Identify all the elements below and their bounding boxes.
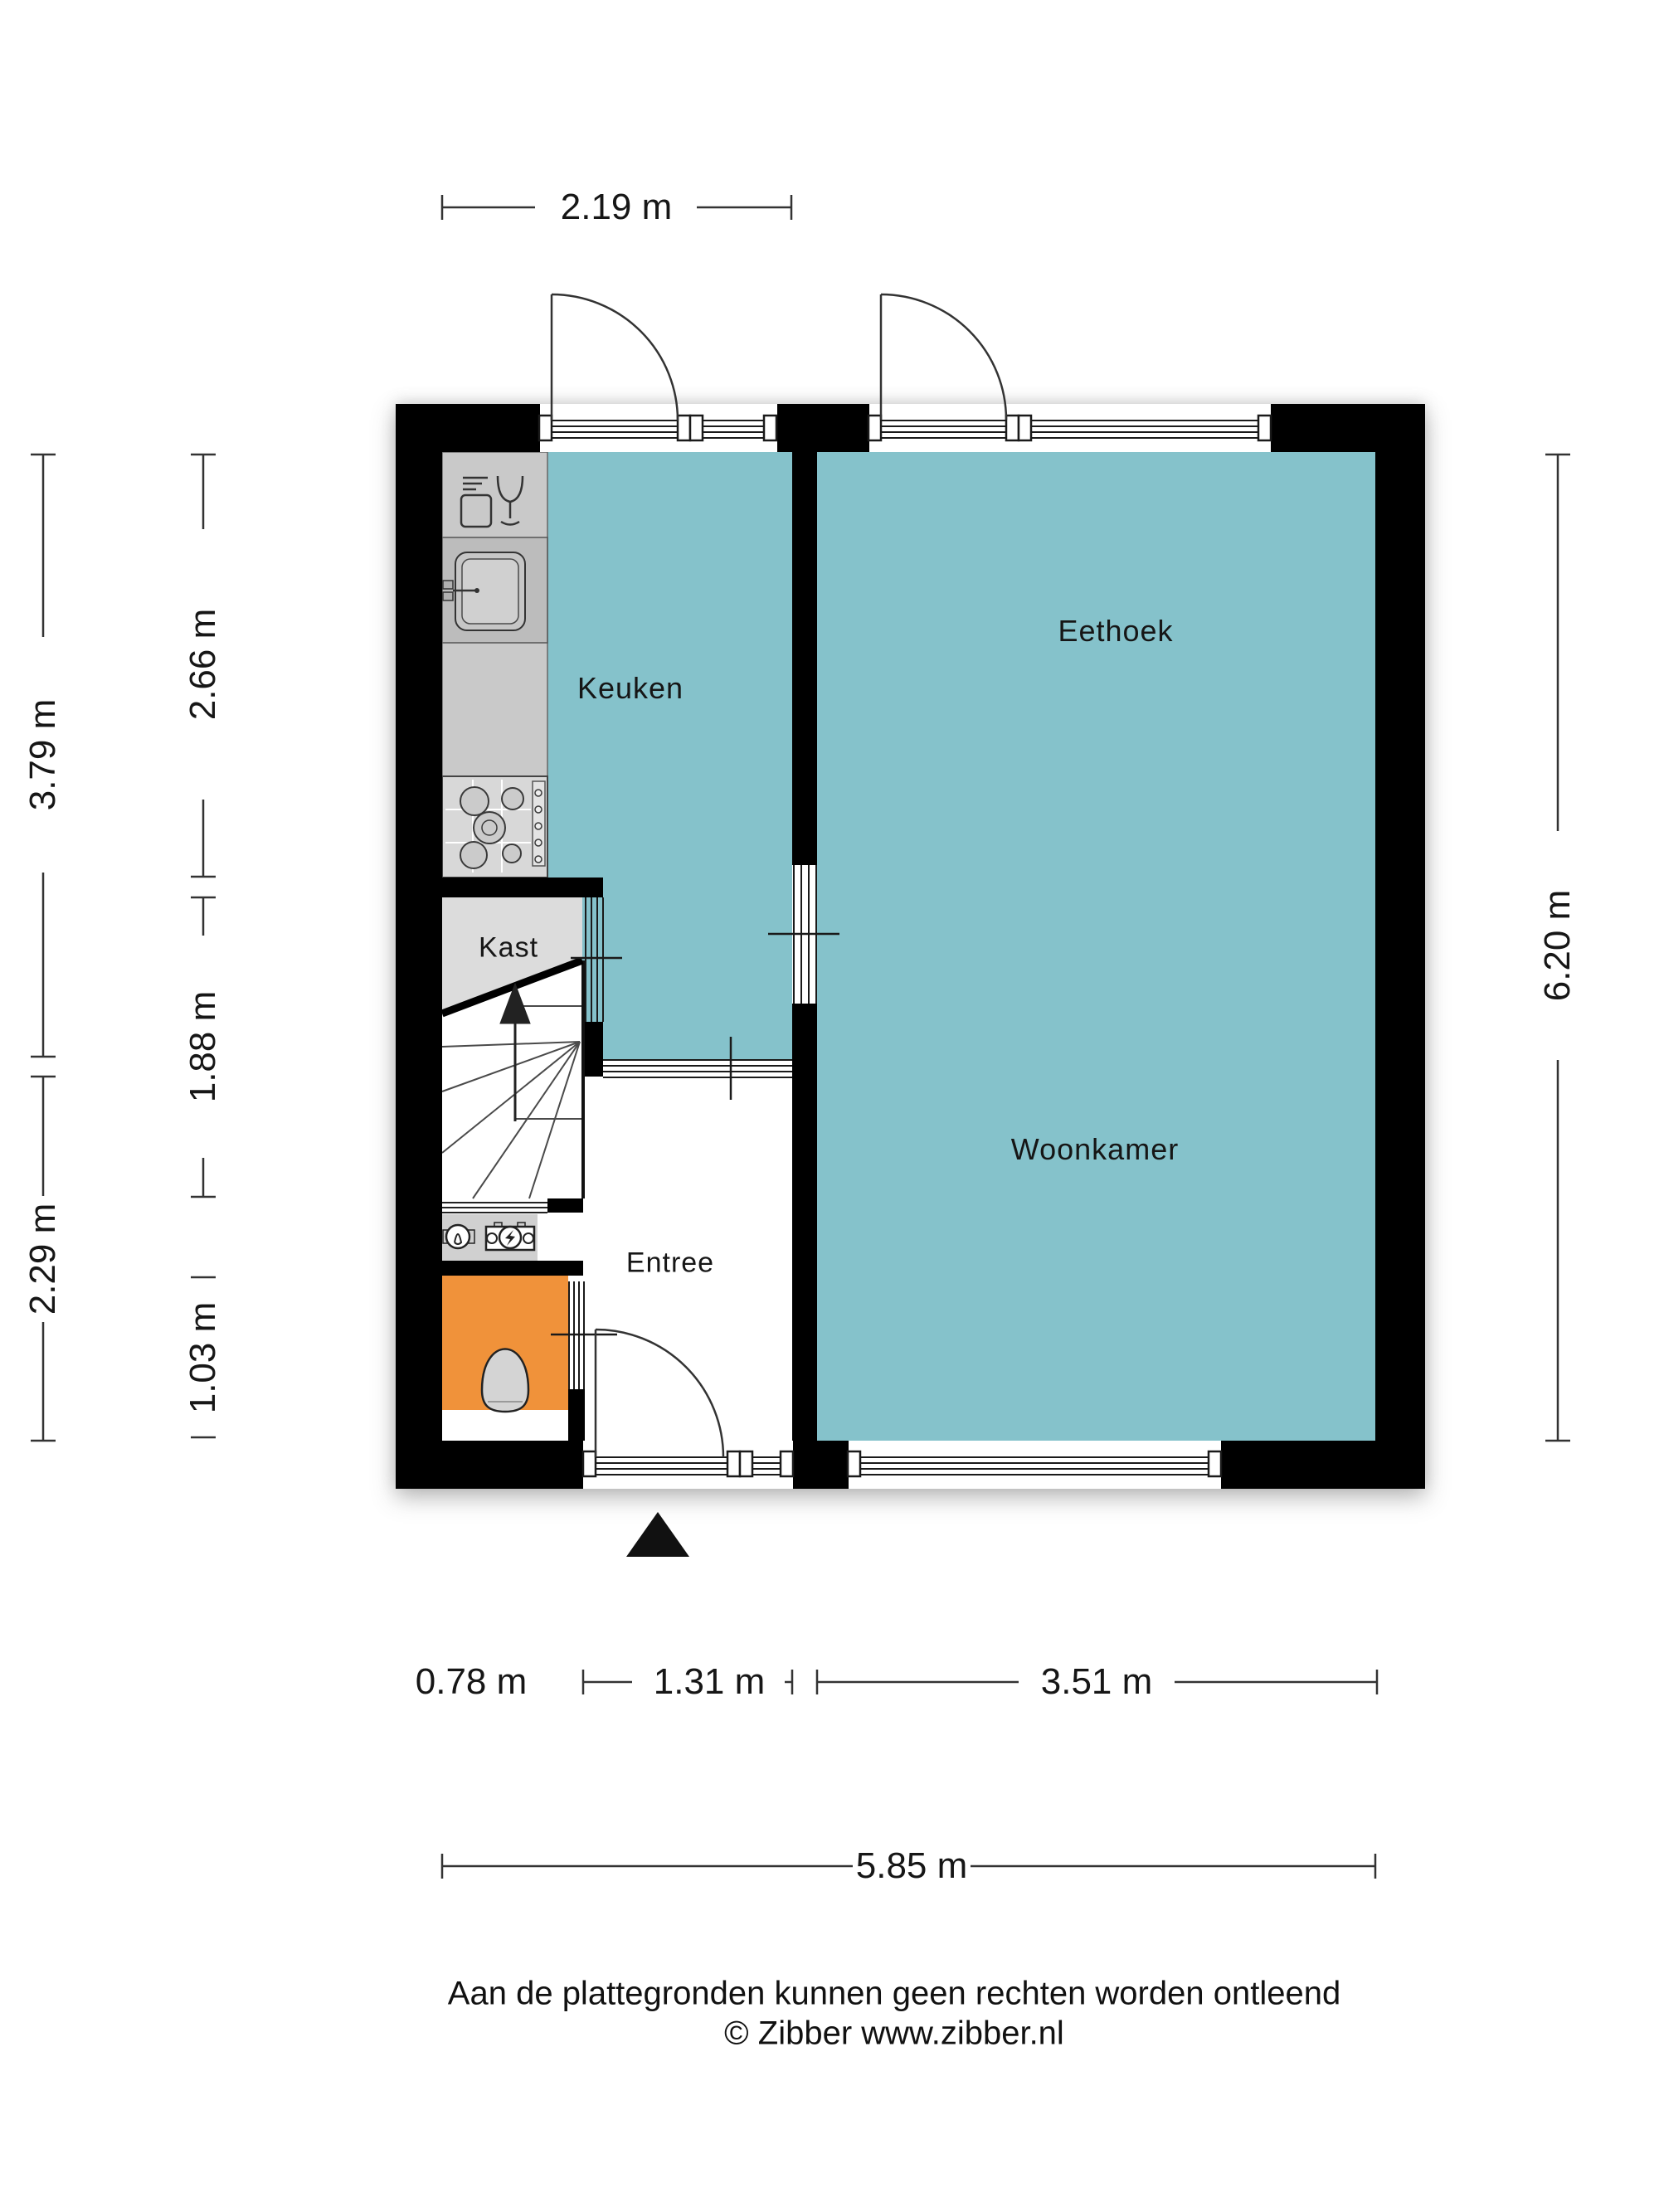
entrance-arrow-icon [626,1512,689,1557]
dim-right-total: 6.20 m [1537,890,1579,1002]
dim-left-188: 1.88 m [182,991,224,1103]
toilet-room [442,1276,568,1412]
footer-disclaimer: Aan de plattegronden kunnen geen rechten… [448,1976,1340,2013]
dim-left-229: 2.29 m [22,1203,64,1315]
footer-copyright: © Zibber www.zibber.nl [724,2015,1064,2053]
floorplan-page: Keuken Eethoek Woonkamer Kast Entree 2.1… [0,0,1659,2212]
room-living-floor [817,452,1375,1441]
label-entree: Entree [626,1247,714,1280]
door-eethoek-exterior [881,294,1006,420]
door-keuken-exterior [552,294,678,421]
dim-left-266: 2.66 m [182,609,224,721]
electric-meter-icon [486,1223,534,1250]
dim-bottom-0: 0.78 m [416,1661,528,1703]
label-keuken: Keuken [577,671,684,706]
wall-left [396,404,442,1489]
label-kast: Kast [479,932,538,965]
wall-right [1375,404,1425,1489]
dim-bottom-1: 1.31 m [654,1661,766,1703]
kitchen-counter [442,452,547,878]
stove-icon [442,776,547,878]
dim-left-103: 1.03 m [182,1302,224,1414]
dim-bottom-2: 3.51 m [1041,1661,1153,1703]
dim-bottom-total: 5.85 m [856,1845,968,1887]
wall-divider-lower [792,1004,817,1441]
label-eethoek: Eethoek [1058,614,1173,649]
dim-top-width: 2.19 m [561,187,673,228]
toilet-icon [482,1349,528,1412]
dim-left-379: 3.79 m [22,699,64,811]
wall-divider-upper [792,452,817,865]
label-woonkamer: Woonkamer [1011,1132,1179,1167]
floor-plan [0,0,1659,2212]
sink-icon [442,537,547,643]
